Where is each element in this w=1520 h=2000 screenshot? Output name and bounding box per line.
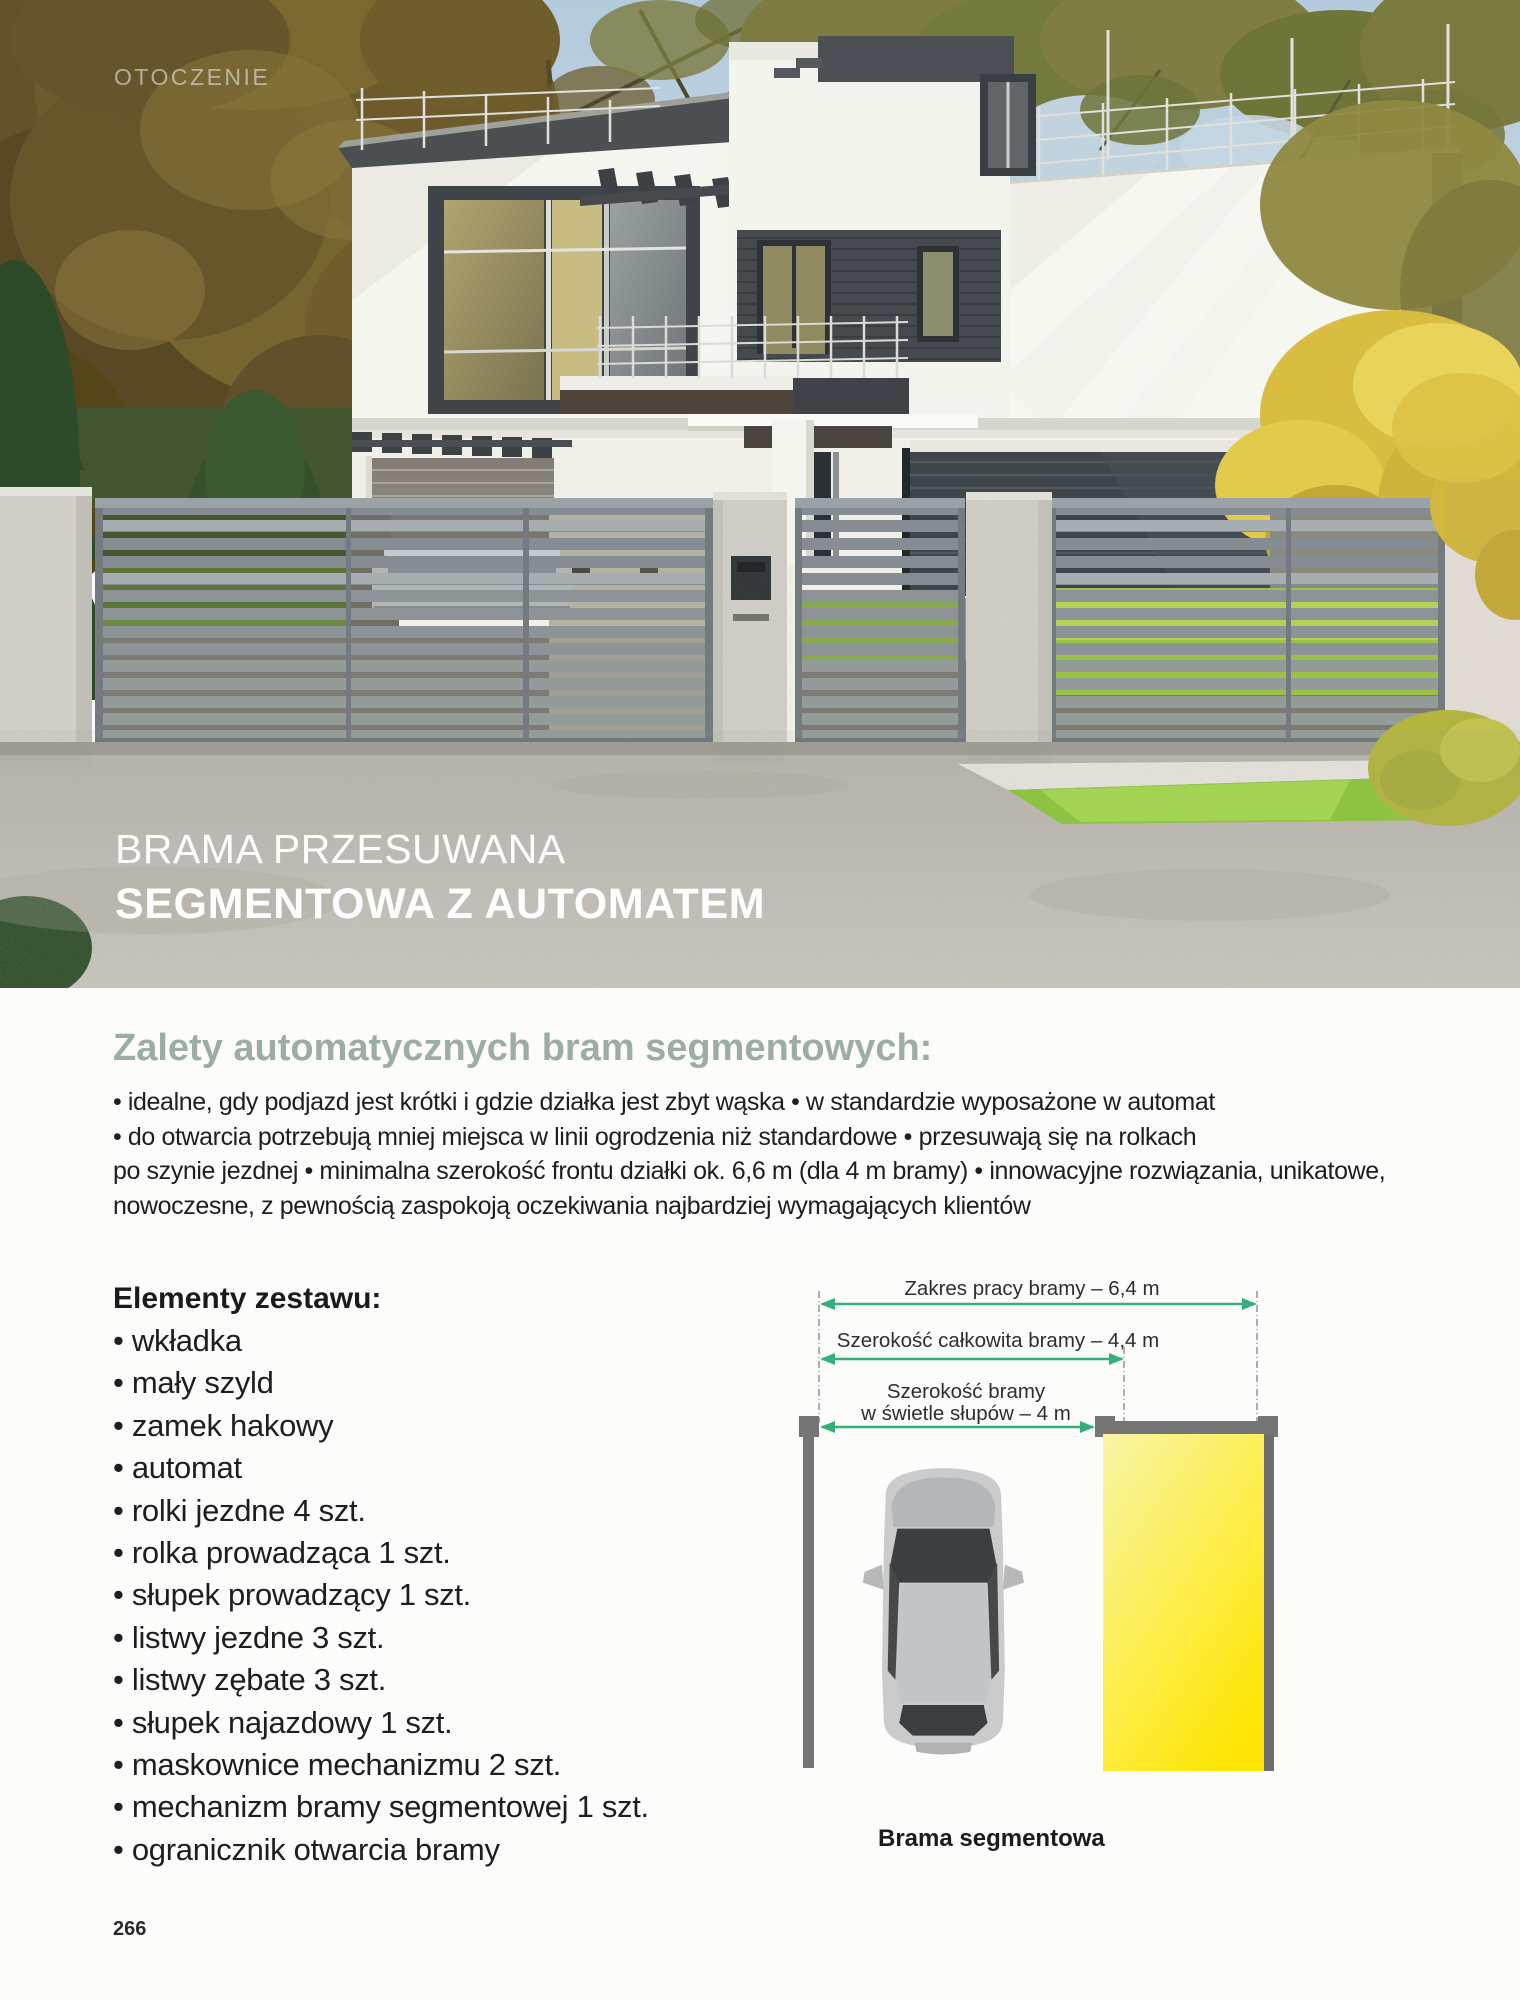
svg-text:Szerokość bramy: Szerokość bramy: [887, 1380, 1046, 1403]
svg-text:Zakres pracy bramy – 6,4 m: Zakres pracy bramy – 6,4 m: [904, 1277, 1159, 1300]
svg-text:w świetle słupów – 4 m: w świetle słupów – 4 m: [860, 1402, 1071, 1425]
svg-text:Szerokość całkowita bramy – 4,: Szerokość całkowita bramy – 4,4 m: [837, 1329, 1159, 1352]
